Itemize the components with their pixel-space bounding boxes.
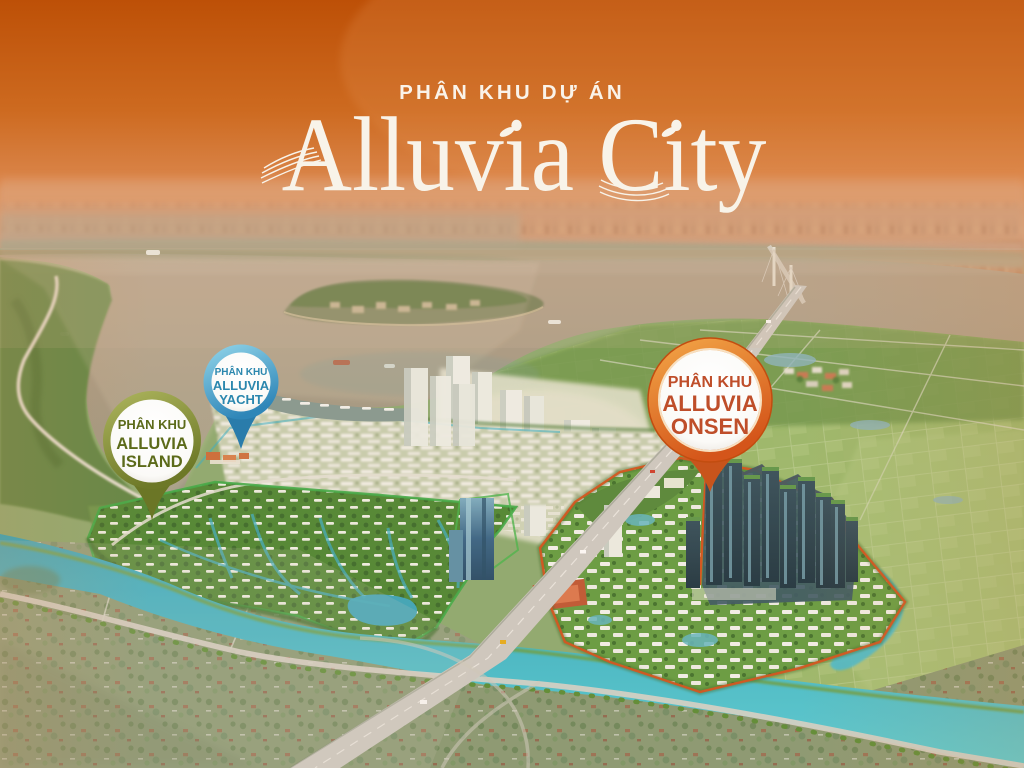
svg-text:ALLUVIA: ALLUVIA <box>662 391 757 416</box>
svg-text:PHÂN KHU: PHÂN KHU <box>118 417 187 432</box>
svg-text:ALLUVIA: ALLUVIA <box>213 378 270 393</box>
svg-text:Alluvia City: Alluvia City <box>282 96 767 214</box>
svg-text:PHÂN KHU: PHÂN KHU <box>668 372 752 391</box>
svg-text:ONSEN: ONSEN <box>671 414 749 439</box>
svg-text:PHÂN KHU: PHÂN KHU <box>215 365 268 378</box>
svg-text:ALLUVIA: ALLUVIA <box>116 435 188 453</box>
svg-text:YACHT: YACHT <box>219 392 263 407</box>
svg-text:ISLAND: ISLAND <box>121 453 183 471</box>
